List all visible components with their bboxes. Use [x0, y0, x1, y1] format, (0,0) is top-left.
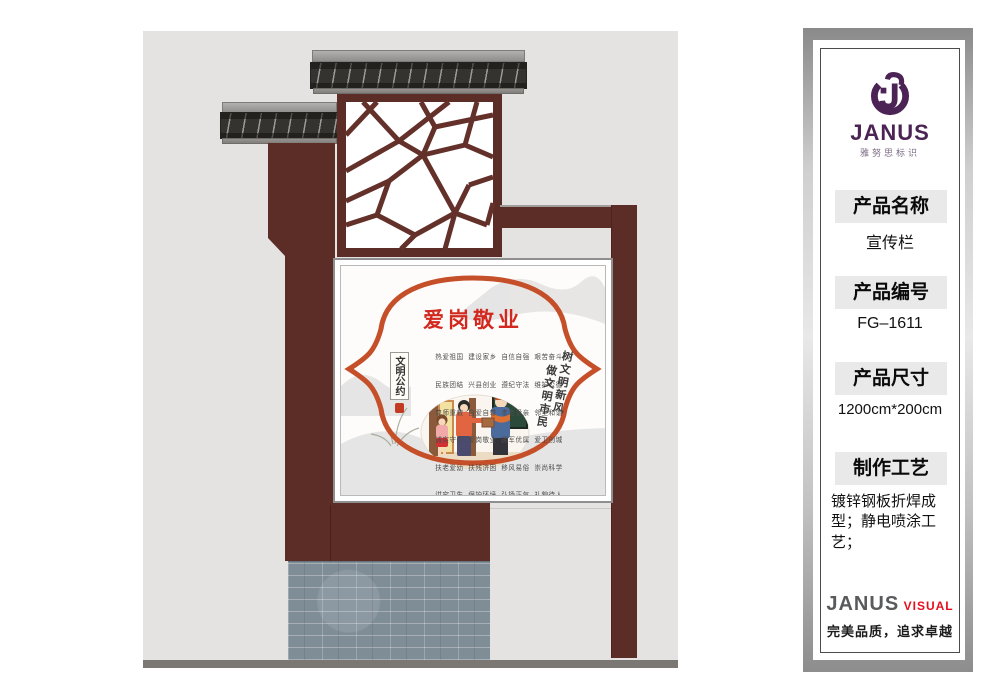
lattice-panel [337, 93, 502, 257]
poster-content: 爱岗敬业 热爱祖国 建设家乡 自信自强 艰苦奋斗 民族团结 兴县创业 遵纪守法 … [340, 265, 606, 496]
cabinet-seam [330, 505, 331, 561]
footer-tagline: 完美品质，追求卓越 [820, 621, 960, 640]
brand-name: JANUS [820, 120, 960, 146]
product-size-value: 1200cm*200cm [820, 401, 960, 418]
section-header-product-number: 产品编号 [835, 276, 947, 309]
top-roof-cap [312, 50, 525, 62]
section-header-product-name: 产品名称 [835, 190, 947, 223]
poster-title: 爱岗敬业 [341, 304, 605, 334]
top-roof-tiles [310, 62, 527, 89]
right-post [611, 205, 637, 658]
footer-brand-visual: VISUAL [904, 599, 954, 613]
section-header-product-size: 产品尺寸 [835, 362, 947, 395]
red-seal [395, 403, 404, 413]
code-row: 诚实守信 爱岗敬业 拥军优属 爱卫创城 [403, 436, 595, 445]
ground-seam [490, 508, 611, 509]
product-number-value: FG–1611 [820, 315, 960, 333]
product-sheet: 爱岗敬业 热爱祖国 建设家乡 自信自强 艰苦奋斗 民族团结 兴县创业 遵纪守法 … [0, 0, 1000, 700]
left-roof-tiles [220, 112, 339, 139]
janus-logo-icon [865, 70, 915, 120]
cabinet-body [285, 503, 490, 561]
footer-brand: JANUS [826, 593, 899, 615]
footer-logo: JANUS VISUAL [820, 593, 960, 616]
section-header-craft: 制作工艺 [835, 452, 947, 485]
brand-subtitle: 雅努思标识 [820, 146, 960, 159]
craft-description: 镀锌钢板折焊成型；静电喷涂工艺； [831, 492, 947, 553]
code-row: 尊师重教 自爱自尊 孝老爱亲 邻里和谐 [403, 409, 595, 418]
code-row: 讲究卫生 保护环境 弘扬正气 礼貌待人 [403, 491, 595, 496]
code-row: 扶老爱幼 扶残济困 移风易俗 崇尚科学 [403, 464, 595, 473]
brick-base [288, 561, 490, 660]
top-roof-strip [313, 88, 524, 94]
civility-pact-tag: 文明公约 [390, 352, 409, 400]
poster-panel: 爱岗敬业 热爱祖国 建设家乡 自信自强 艰苦奋斗 民族团结 兴县创业 遵纪守法 … [333, 258, 613, 503]
product-name-value: 宣传栏 [820, 229, 960, 253]
floor-bar [143, 660, 678, 668]
